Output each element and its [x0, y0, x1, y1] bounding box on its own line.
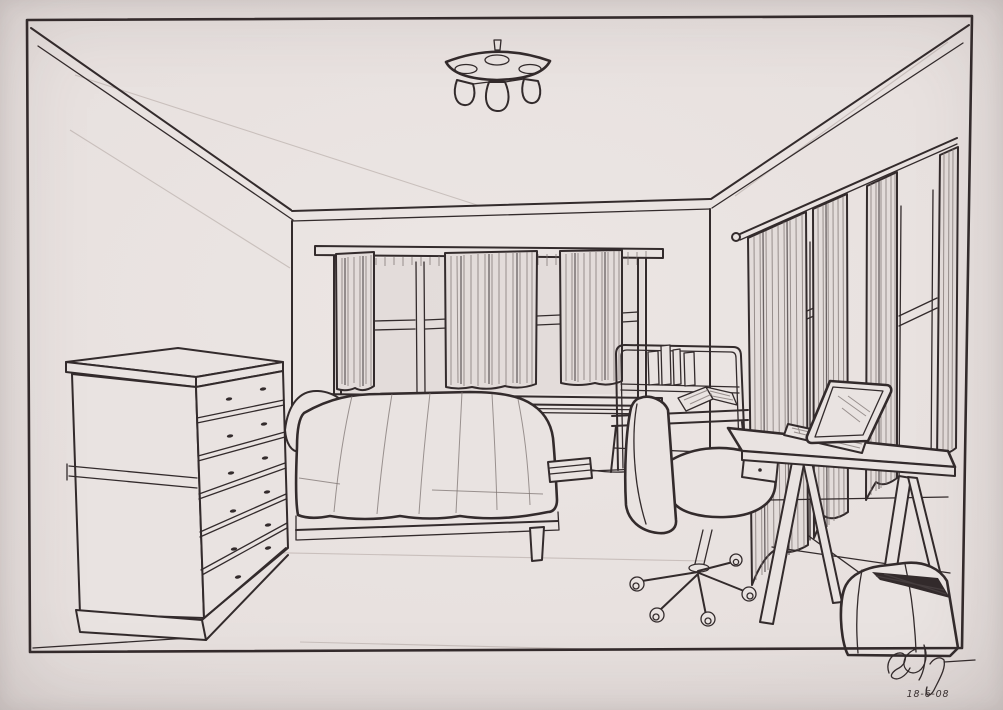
left-bulb — [455, 80, 475, 105]
ceiling-corner-left — [31, 28, 291, 210]
gas-cylinder — [694, 530, 712, 568]
bedroom-perspective-drawing: 18-6-08 — [0, 0, 1003, 710]
ceiling-light — [446, 40, 550, 111]
signature-date: 18-6-08 — [907, 689, 950, 700]
back-window — [315, 246, 663, 416]
back-curtain-panel-3 — [560, 250, 622, 385]
photographed-sketch: 18-6-08 — [0, 0, 1003, 710]
right-bulb — [522, 79, 540, 103]
back-curtain-panel-2 — [445, 251, 537, 389]
back-wall-crown-molding — [292, 199, 710, 211]
floor-bag — [841, 563, 958, 656]
light-plate — [446, 52, 550, 80]
dresser — [66, 348, 288, 640]
bed — [285, 391, 559, 561]
center-bulb — [486, 82, 509, 111]
dresser-side-panel — [72, 374, 204, 618]
ceiling-corner-right — [711, 25, 969, 199]
right-curtain-panel-4 — [937, 147, 958, 462]
right-curtain-rod — [740, 138, 957, 234]
chair-backrest — [625, 397, 676, 533]
right-sash-bars-wide — [899, 298, 937, 326]
bed-frame-rail — [296, 521, 558, 530]
rod-finial — [732, 233, 740, 241]
right-window-frame-2 — [899, 190, 933, 488]
ceiling-mount-stem — [494, 40, 501, 50]
bed-leg — [530, 527, 544, 561]
drawer-knob — [758, 468, 762, 472]
